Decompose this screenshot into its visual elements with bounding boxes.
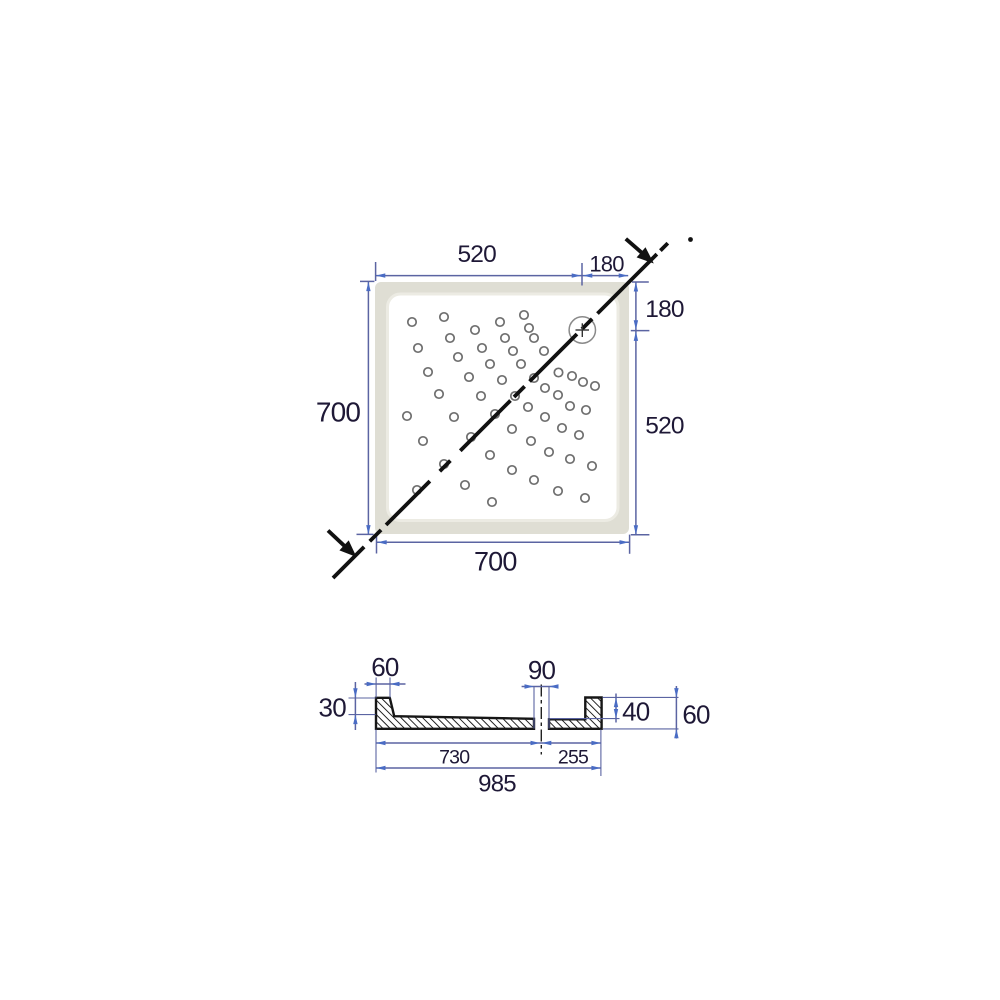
- svg-text:520: 520: [457, 241, 496, 268]
- svg-text:60: 60: [371, 652, 399, 682]
- svg-text:180: 180: [645, 296, 684, 323]
- svg-text:90: 90: [528, 655, 556, 685]
- svg-text:30: 30: [319, 692, 347, 722]
- svg-text:60: 60: [682, 700, 710, 730]
- svg-text:700: 700: [316, 397, 361, 428]
- svg-text:730: 730: [439, 747, 470, 769]
- svg-text:180: 180: [589, 252, 624, 277]
- svg-text:255: 255: [558, 747, 589, 769]
- svg-text:520: 520: [645, 413, 684, 440]
- svg-text:40: 40: [622, 697, 650, 727]
- svg-text:985: 985: [478, 771, 516, 798]
- svg-text:700: 700: [474, 547, 517, 577]
